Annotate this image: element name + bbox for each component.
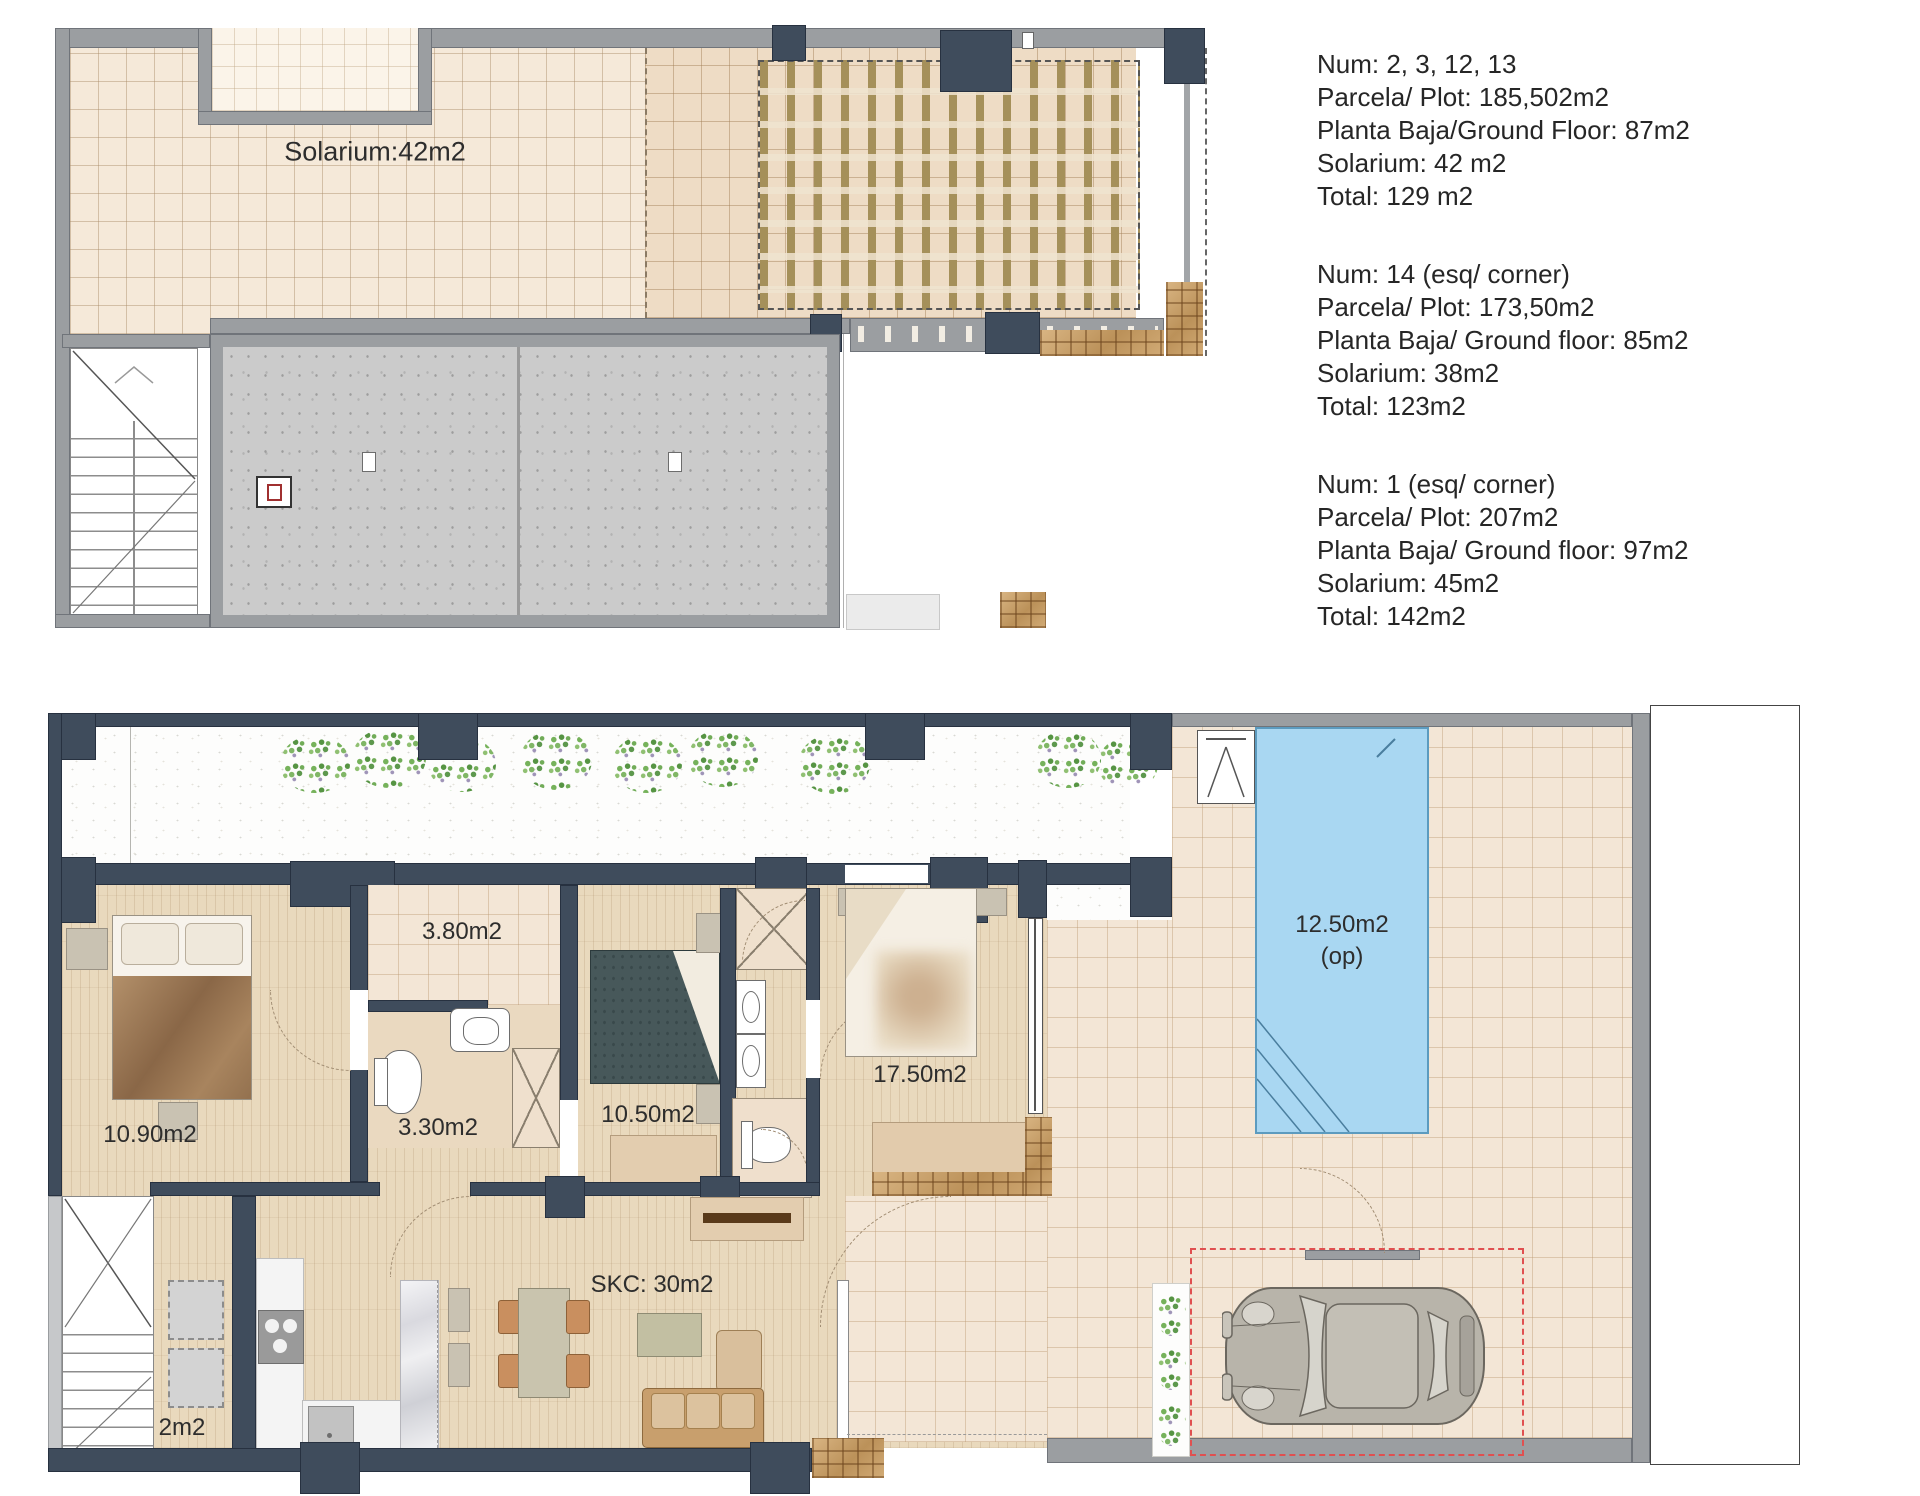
room-label-bedroom-middle: 10.50m2 [601, 1101, 694, 1129]
wall [232, 1196, 256, 1460]
wall [470, 1182, 820, 1196]
window [1028, 918, 1043, 1114]
column [1130, 857, 1172, 917]
toilet-tank [374, 1058, 388, 1106]
pool-label: 12.50m2 [1295, 911, 1388, 939]
room-label-entry: 3.80m2 [422, 918, 502, 946]
room-label-living: SKC: 30m2 [591, 1271, 714, 1299]
door-opening [845, 865, 928, 883]
plant-icon [1156, 1346, 1186, 1390]
chair [566, 1354, 590, 1388]
sofa-cushion [721, 1393, 755, 1429]
plant-icon [1156, 1292, 1186, 1336]
terrace-wall-right [1632, 713, 1650, 1463]
column [1130, 713, 1172, 770]
shower-icon [512, 1048, 560, 1148]
nightstand [696, 913, 722, 953]
kitchen-island [400, 1280, 439, 1450]
terrace-wall-top [1172, 713, 1632, 727]
sofa-cushion [651, 1393, 685, 1429]
sheet-fold [846, 889, 906, 979]
wall-garden-bottom [48, 863, 1172, 885]
car-icon [1222, 1282, 1488, 1430]
column [418, 713, 478, 760]
sideboard-bar [703, 1213, 791, 1223]
fence-line [130, 727, 131, 863]
room-label-bedroom-right: 17.50m2 [873, 1061, 966, 1089]
wall [150, 1182, 380, 1196]
blanket [113, 976, 251, 1099]
bed-icon [845, 888, 977, 1057]
window-mullion [1034, 919, 1036, 1111]
porch-dashed-line [847, 1434, 1047, 1435]
burner [265, 1319, 279, 1333]
mattress-fold [673, 951, 719, 1081]
sink-basin [742, 991, 760, 1023]
column [56, 713, 96, 760]
column [750, 1442, 810, 1494]
burner [273, 1339, 287, 1353]
plant-icon [1035, 730, 1101, 788]
pool-note: (op) [1321, 943, 1364, 971]
ground-floor-plan: 10.90m2 3.80m2 3.30m2 10.50m2 [0, 0, 1920, 1496]
staircase-lower [62, 1196, 154, 1462]
column [56, 857, 96, 923]
nightstand [66, 928, 108, 970]
column [300, 1442, 360, 1494]
plant-icon [520, 730, 592, 790]
pillow [121, 923, 179, 965]
counter-dashed-line [437, 1280, 438, 1448]
drain [327, 1433, 332, 1438]
brick-pillar [1025, 1117, 1052, 1196]
plant-icon [688, 729, 758, 787]
sofa-icon [642, 1388, 764, 1448]
plant-icon [352, 728, 426, 788]
pillow [185, 923, 243, 965]
plant-icon [612, 735, 682, 793]
appliance-icon [168, 1348, 224, 1408]
wall-bottom [48, 1448, 812, 1472]
bed-icon [112, 915, 252, 1100]
burner [283, 1319, 297, 1333]
brick-block [812, 1438, 884, 1478]
column [1018, 860, 1047, 918]
sofa-cushion [686, 1393, 720, 1429]
column [865, 713, 925, 760]
garden-strip [62, 727, 1130, 863]
chair [566, 1300, 590, 1334]
door-swing-arc [761, 1129, 808, 1176]
side-plot [1650, 705, 1800, 1465]
sideboard [690, 1197, 804, 1241]
sink-basin [463, 1017, 499, 1045]
stool [448, 1343, 470, 1387]
pool-ladder-icon [1197, 730, 1255, 804]
sink-icon [736, 980, 766, 1034]
pool: 12.50m2 (op) [1255, 727, 1429, 1134]
column [545, 1176, 585, 1218]
ladder-lines [1198, 731, 1254, 803]
door-opening [806, 1000, 820, 1078]
door-opening [350, 990, 368, 1070]
stair-lines [63, 1197, 153, 1461]
plant-icon [280, 735, 350, 793]
stool [448, 1288, 470, 1332]
room-label-bedroom-left: 10.90m2 [103, 1121, 196, 1149]
wall-left-lower [48, 1196, 62, 1472]
sink-icon [450, 1008, 510, 1052]
toilet-tank [741, 1121, 753, 1169]
room-label-pantry: 2m2 [159, 1414, 206, 1442]
planter-strip [1152, 1283, 1190, 1457]
dining-table [518, 1288, 570, 1398]
coffee-table [637, 1313, 702, 1357]
plant-icon [1156, 1402, 1186, 1446]
room-label-bathroom: 3.30m2 [398, 1114, 478, 1142]
wall-left [48, 713, 62, 1196]
sofa-chaise [716, 1330, 762, 1392]
sink-icon [736, 1034, 766, 1088]
appliance-icon [168, 1280, 224, 1340]
porch-post [837, 1280, 849, 1439]
wall-top [48, 713, 1172, 727]
bed-icon [590, 950, 720, 1084]
plant-icon [798, 734, 870, 794]
stove-icon [258, 1310, 304, 1364]
sink-basin [742, 1045, 760, 1077]
door-opening [560, 1100, 578, 1178]
kitchen-sink-icon [308, 1406, 354, 1446]
nightstand [696, 1084, 722, 1124]
